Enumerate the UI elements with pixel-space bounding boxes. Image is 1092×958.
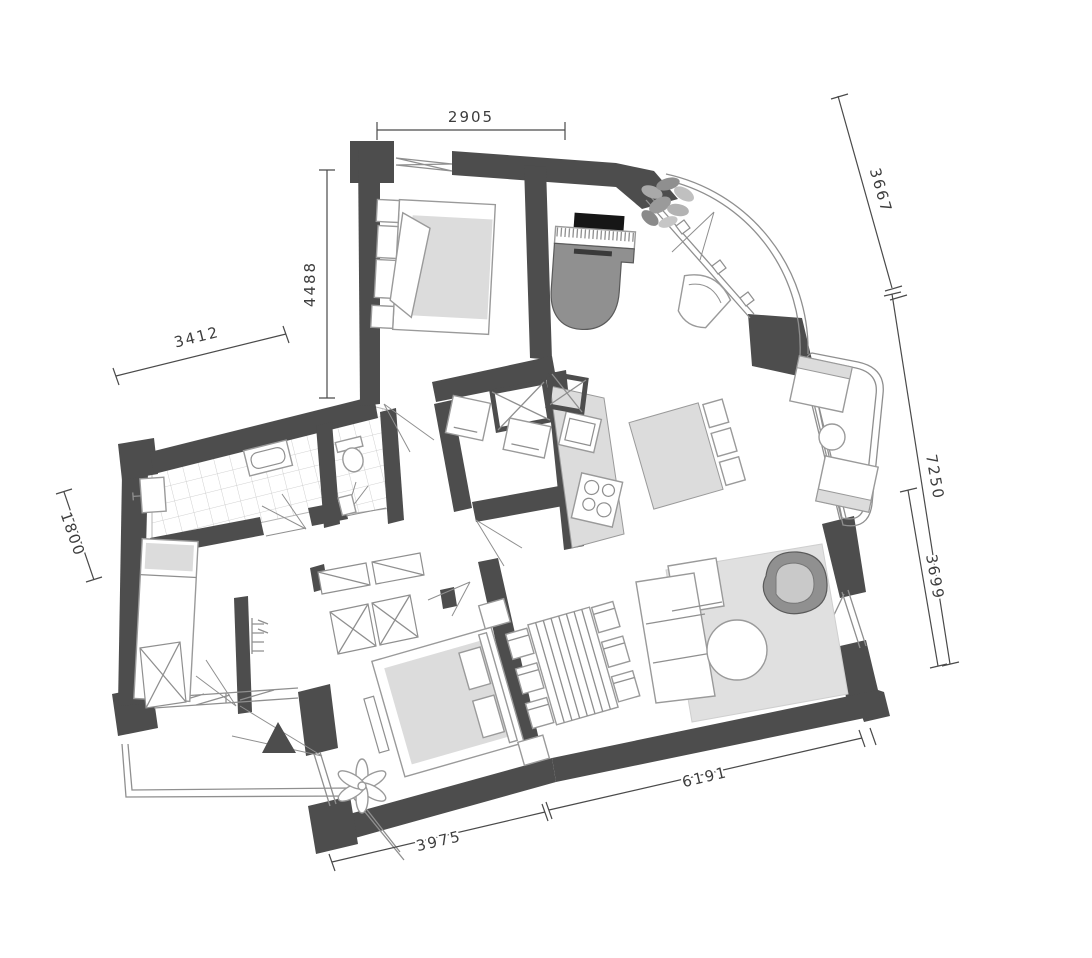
dark-armchair (763, 552, 827, 614)
dim-label-top: 2905 (448, 108, 494, 126)
balcony-chair-1 (790, 356, 852, 412)
kitchen-island (629, 396, 746, 509)
dim-label-bottom-right: 6191 (680, 763, 729, 791)
dim-label-top-right: 3667 (866, 166, 896, 215)
hall-closet-doors (318, 553, 424, 594)
dim-right-inner: 3699 (900, 488, 948, 668)
living-room (505, 544, 848, 731)
kitchen-sink (559, 411, 602, 452)
kitchen (548, 374, 746, 548)
coffee-table (707, 620, 767, 680)
conservatory-armchair (666, 267, 735, 336)
corridor-dining-door-swing (476, 520, 522, 566)
balcony (790, 353, 883, 526)
dim-label-far-left: 1800 (57, 510, 89, 560)
dim-far-left: 1800 (56, 489, 102, 582)
bedroom2-wardrobe-2 (372, 595, 418, 645)
window-top (396, 158, 452, 171)
dim-top: 2905 (377, 108, 565, 140)
dim-upper-left: 3412 (113, 323, 289, 385)
dim-top-right: 3667 (831, 94, 907, 300)
balcony-table (819, 424, 845, 450)
dim-left-vertical: 4488 (301, 170, 335, 398)
dim-label-right-outer: 7250 (922, 453, 948, 502)
bedroom2-wardrobe-1 (330, 604, 376, 654)
washing-machine-2 (503, 418, 551, 458)
floor-plan-canvas: 2905 3667 4488 3412 1800 7250 3699 6191 (0, 0, 1092, 958)
dim-label-upper-left: 3412 (172, 323, 221, 352)
bedroom1-double-bed (371, 198, 496, 334)
small-bedroom-wardrobe (140, 642, 186, 708)
washing-machine-1 (445, 395, 490, 440)
coat-rack (252, 618, 268, 654)
floor-plan-page: 2905 3667 4488 3412 1800 7250 3699 6191 (0, 0, 1092, 958)
dim-label-left: 4488 (301, 261, 319, 307)
grand-piano (549, 211, 637, 332)
dim-right-outer: 7250 (884, 292, 959, 666)
dim-label-bottom-left: 3975 (414, 827, 463, 855)
